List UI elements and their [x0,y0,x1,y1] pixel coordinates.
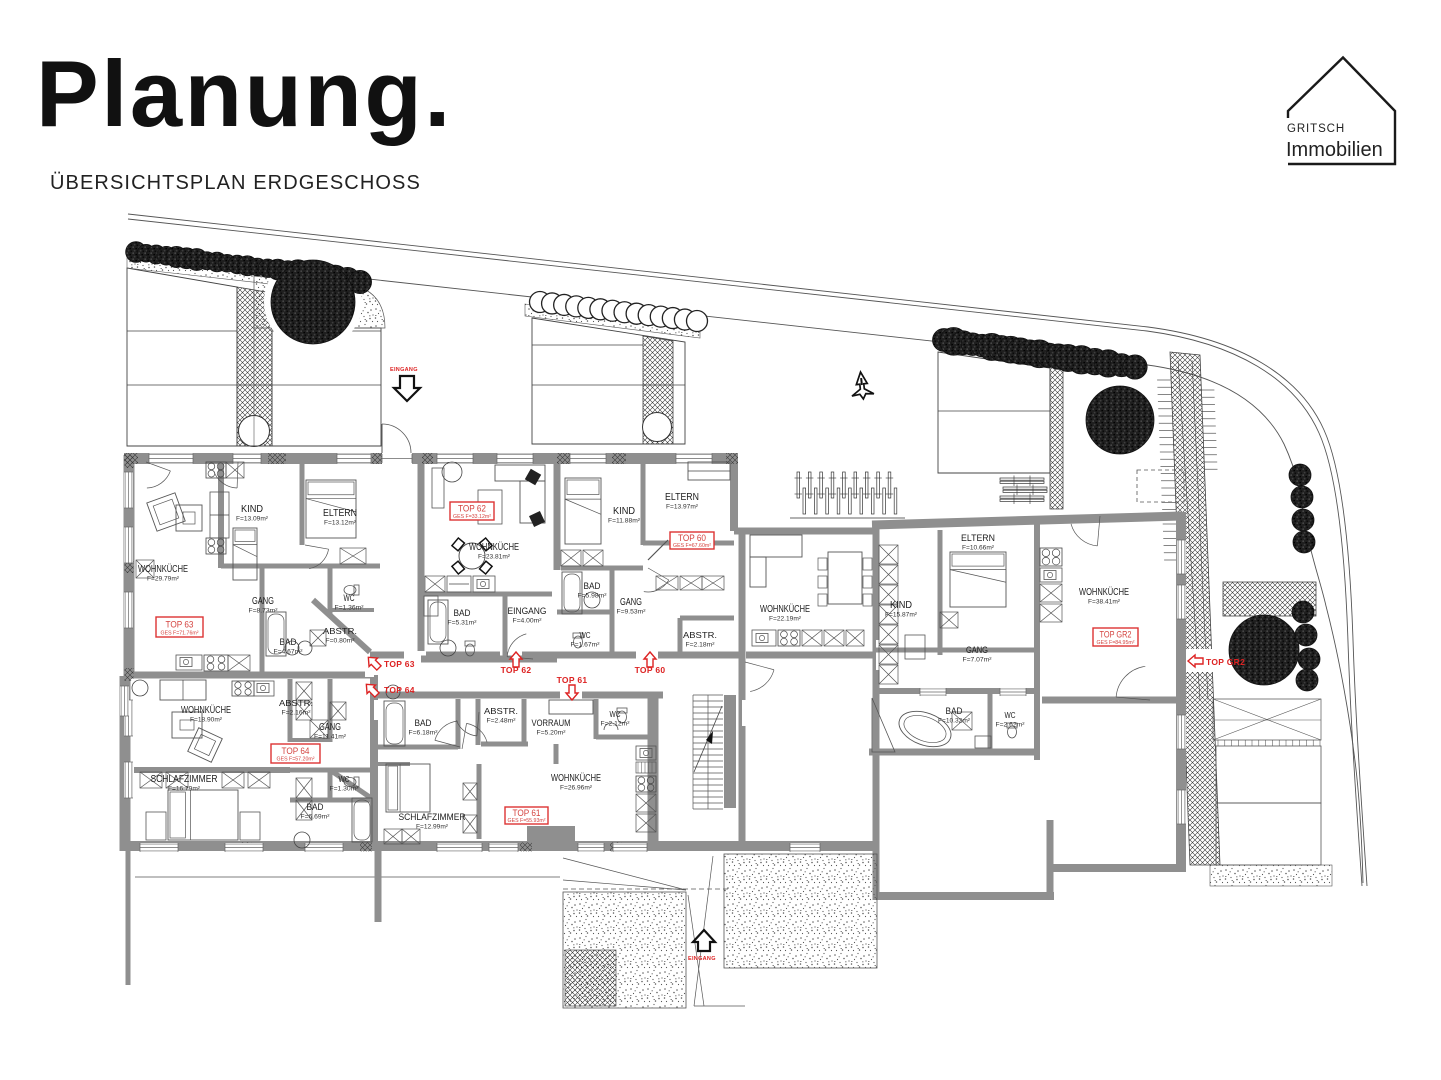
svg-text:F=18.90m²: F=18.90m² [190,717,222,724]
svg-text:F=8.73m²: F=8.73m² [249,608,278,615]
svg-text:GES F=55.93m²: GES F=55.93m² [508,818,546,824]
svg-text:GES F=67.60m²: GES F=67.60m² [673,543,711,549]
svg-text:F=7.07m²: F=7.07m² [963,657,992,664]
svg-text:GES F=57.20m²: GES F=57.20m² [277,757,315,763]
svg-text:F=9.53m²: F=9.53m² [617,609,646,616]
svg-text:KIND: KIND [890,600,912,611]
svg-text:TOP 60: TOP 60 [635,665,666,675]
svg-text:F=15.87m²: F=15.87m² [885,612,917,619]
svg-text:GRITSCH: GRITSCH [1287,123,1345,135]
svg-text:F=38.41m²: F=38.41m² [1088,599,1120,606]
svg-text:GANG: GANG [966,645,988,656]
svg-text:F=12.99m²: F=12.99m² [416,824,448,831]
svg-text:F=13.12m²: F=13.12m² [324,520,356,527]
svg-text:EINGANG: EINGANG [688,956,716,962]
svg-text:GANG: GANG [620,597,642,608]
svg-text:F=13.97m²: F=13.97m² [666,504,698,511]
svg-text:F=1.36m²: F=1.36m² [335,605,364,612]
svg-text:F=16.79m²: F=16.79m² [168,786,200,793]
svg-text:BAD: BAD [307,802,324,813]
svg-text:BAD: BAD [415,718,432,729]
svg-text:WOHNKÜCHE: WOHNKÜCHE [181,704,231,716]
svg-text:F=22.19m²: F=22.19m² [769,616,801,623]
svg-text:TOP 63: TOP 63 [166,619,194,629]
svg-text:F=13.09m²: F=13.09m² [236,516,268,523]
svg-text:ELTERN: ELTERN [665,492,699,503]
svg-text:KIND: KIND [241,504,263,515]
svg-text:F=5.31m²: F=5.31m² [448,620,477,627]
svg-text:F=2.48m²: F=2.48m² [487,718,516,725]
svg-text:F=6.18m²: F=6.18m² [409,730,438,737]
svg-text:VORRAUM: VORRAUM [532,718,571,728]
svg-text:BAD: BAD [584,581,601,592]
svg-text:WOHNKÜCHE: WOHNKÜCHE [760,603,810,615]
svg-text:SCHLAFZIMMER: SCHLAFZIMMER [151,774,218,785]
svg-text:ABSTR.: ABSTR. [683,630,717,640]
svg-text:KIND: KIND [613,506,635,517]
svg-text:F=4.00m²: F=4.00m² [513,618,542,625]
svg-text:F=10.32m²: F=10.32m² [938,718,970,725]
svg-text:WC: WC [1005,710,1016,720]
svg-text:F=29.79m²: F=29.79m² [147,576,179,583]
svg-text:GES F=71.76m²: GES F=71.76m² [161,631,199,637]
svg-text:F=5.98m²: F=5.98m² [578,593,607,600]
svg-text:WC: WC [339,774,350,784]
svg-text:GANG: GANG [252,596,274,607]
svg-text:WOHNKÜCHE: WOHNKÜCHE [469,541,519,553]
svg-text:TOP 62: TOP 62 [501,665,532,675]
svg-text:TOP 62: TOP 62 [458,503,486,513]
svg-text:F=5.20m²: F=5.20m² [537,730,566,737]
svg-text:WC: WC [610,709,621,719]
svg-text:TOP 61: TOP 61 [513,808,541,818]
svg-text:F=1.30m²: F=1.30m² [330,786,359,793]
svg-text:F=6.69m²: F=6.69m² [301,814,330,821]
svg-text:F=26.96m²: F=26.96m² [560,785,592,792]
svg-text:EINGANG: EINGANG [508,606,547,616]
svg-text:ABSTR.: ABSTR. [323,626,357,636]
svg-text:WC: WC [580,630,591,640]
svg-text:ABSTR.: ABSTR. [484,706,518,716]
svg-text:GES F=84.95m²: GES F=84.95m² [1097,640,1135,646]
svg-text:TOP 64: TOP 64 [282,746,310,756]
svg-text:TOP GR2: TOP GR2 [1100,629,1132,639]
svg-text:F=11.88m²: F=11.88m² [608,518,640,525]
svg-text:TOP 61: TOP 61 [557,675,588,685]
svg-text:BAD: BAD [946,706,963,717]
svg-text:F=23.81m²: F=23.81m² [478,554,510,561]
svg-text:ABSTR.: ABSTR. [279,698,313,708]
svg-text:EINGANG: EINGANG [390,367,418,373]
svg-text:F=1.67m²: F=1.67m² [571,642,600,649]
svg-text:WOHNKÜCHE: WOHNKÜCHE [138,563,188,575]
svg-text:BAD: BAD [454,608,471,619]
svg-text:F=0.80m²: F=0.80m² [326,638,355,645]
svg-text:TOP GR2: TOP GR2 [1206,657,1245,667]
svg-text:Immobilien: Immobilien [1286,139,1383,161]
svg-text:F=11.41m²: F=11.41m² [314,734,346,741]
svg-text:WOHNKÜCHE: WOHNKÜCHE [551,772,601,784]
svg-text:TOP 63: TOP 63 [384,659,415,669]
svg-text:GES F=33.12m²: GES F=33.12m² [453,514,491,520]
svg-text:TOP 64: TOP 64 [384,685,415,695]
svg-text:ELTERN: ELTERN [323,508,357,519]
svg-text:SCHLAFZIMMER: SCHLAFZIMMER [399,812,466,823]
svg-text:ELTERN: ELTERN [961,533,995,544]
svg-text:WOHNKÜCHE: WOHNKÜCHE [1079,586,1129,598]
svg-text:F=2.62m²: F=2.62m² [996,722,1025,729]
svg-text:F=10.66m²: F=10.66m² [962,545,994,552]
svg-text:GANG: GANG [319,722,341,733]
svg-text:F=2.12m²: F=2.12m² [601,721,630,728]
svg-text:F=2.16m²: F=2.16m² [282,710,311,717]
svg-text:F=2.18m²: F=2.18m² [686,642,715,649]
svg-text:TOP 60: TOP 60 [678,533,706,543]
